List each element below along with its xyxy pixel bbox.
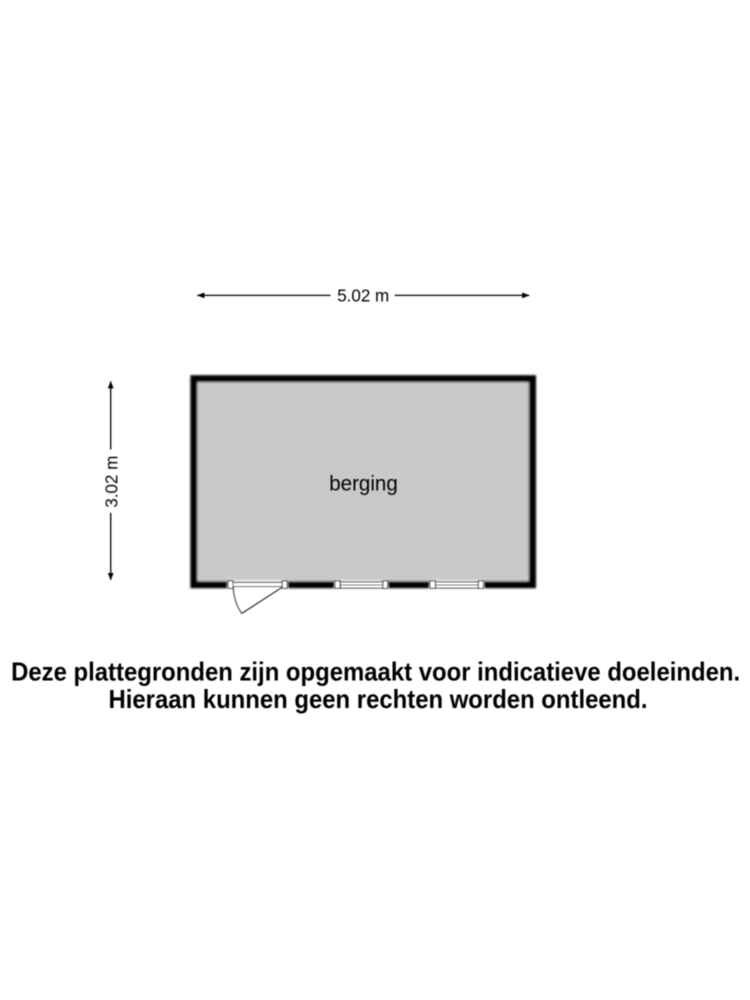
svg-text:3.02 m: 3.02 m — [101, 456, 121, 508]
svg-text:Deze plattegronden zijn opgema: Deze plattegronden zijn opgemaakt voor i… — [11, 656, 740, 686]
svg-text:Hieraan kunnen geen rechten wo: Hieraan kunnen geen rechten worden ontle… — [109, 684, 648, 714]
svg-text:berging: berging — [329, 472, 398, 495]
svg-text:5.02 m: 5.02 m — [337, 285, 389, 305]
